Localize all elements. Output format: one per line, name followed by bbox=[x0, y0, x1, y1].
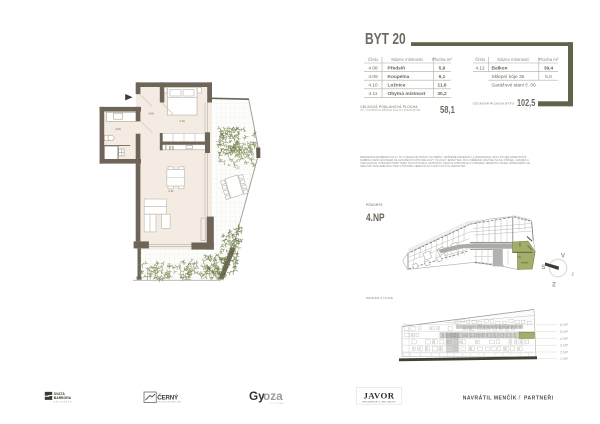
svg-text:REZIDENCE: REZIDENCE bbox=[54, 401, 72, 403]
svg-text:NAVRÁTIL MENČÍK: NAVRÁTIL MENČÍK bbox=[463, 393, 517, 401]
svg-text:PARTNEŘI: PARTNEŘI bbox=[524, 393, 554, 401]
svg-text:RESIDENCE & WELLNESS: RESIDENCE & WELLNESS bbox=[363, 402, 396, 404]
svg-text:BARBORA: BARBORA bbox=[54, 396, 72, 400]
svg-text:ČERNÝ: ČERNÝ bbox=[157, 395, 179, 402]
svg-text:/: / bbox=[519, 395, 521, 402]
svg-text:oza: oza bbox=[263, 389, 283, 403]
svg-text:BY KOMA: BY KOMA bbox=[270, 402, 284, 405]
svg-text:JAVOR: JAVOR bbox=[364, 390, 395, 400]
svg-text:PROJEKČNÍ ATELIÉR: PROJEKČNÍ ATELIÉR bbox=[157, 401, 181, 404]
